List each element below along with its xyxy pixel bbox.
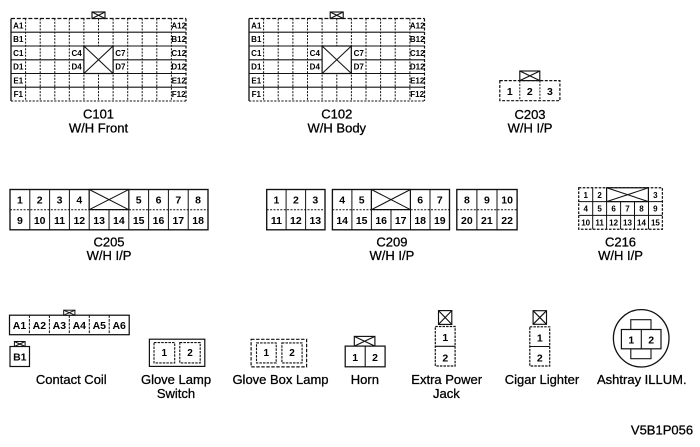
svg-text:A1: A1 xyxy=(13,320,27,332)
svg-text:C1: C1 xyxy=(251,49,262,58)
svg-text:22: 22 xyxy=(501,215,513,227)
svg-text:2: 2 xyxy=(527,86,533,98)
svg-text:Glove Lamp: Glove Lamp xyxy=(141,372,211,387)
svg-text:4: 4 xyxy=(339,195,345,207)
svg-text:14: 14 xyxy=(336,215,348,227)
svg-text:10: 10 xyxy=(501,195,513,207)
svg-text:Switch: Switch xyxy=(157,386,195,401)
svg-text:7: 7 xyxy=(437,195,443,207)
svg-text:A1: A1 xyxy=(13,21,24,30)
svg-text:D1: D1 xyxy=(13,63,24,72)
svg-text:2: 2 xyxy=(597,191,602,200)
svg-text:16: 16 xyxy=(153,215,165,227)
svg-text:D4: D4 xyxy=(71,63,82,72)
svg-text:A12: A12 xyxy=(171,21,186,30)
svg-text:5: 5 xyxy=(136,195,142,207)
svg-text:5: 5 xyxy=(597,205,602,214)
svg-text:15: 15 xyxy=(356,215,368,227)
svg-text:10: 10 xyxy=(581,219,590,228)
svg-text:W/H Front: W/H Front xyxy=(69,121,129,136)
svg-text:13: 13 xyxy=(309,215,321,227)
svg-text:E1: E1 xyxy=(13,76,23,85)
svg-text:6: 6 xyxy=(417,195,423,207)
svg-text:Contact Coil: Contact Coil xyxy=(36,372,107,387)
svg-text:2: 2 xyxy=(537,353,543,365)
svg-text:16: 16 xyxy=(375,215,387,227)
svg-text:13: 13 xyxy=(93,215,105,227)
svg-text:B1: B1 xyxy=(13,352,27,364)
svg-text:9: 9 xyxy=(484,195,490,207)
svg-text:C102: C102 xyxy=(321,107,352,122)
svg-text:Cigar Lighter: Cigar Lighter xyxy=(505,372,580,387)
svg-text:1: 1 xyxy=(537,332,543,344)
svg-text:C1: C1 xyxy=(13,49,24,58)
svg-text:12: 12 xyxy=(609,219,618,228)
svg-text:9: 9 xyxy=(17,215,23,227)
svg-text:12: 12 xyxy=(290,215,302,227)
svg-text:19: 19 xyxy=(434,215,446,227)
svg-text:C12: C12 xyxy=(410,49,425,58)
svg-text:11: 11 xyxy=(54,215,65,227)
svg-text:18: 18 xyxy=(192,215,204,227)
svg-text:2: 2 xyxy=(648,335,654,347)
svg-text:B1: B1 xyxy=(13,35,24,44)
svg-text:Glove Box Lamp: Glove Box Lamp xyxy=(232,372,328,387)
svg-text:2: 2 xyxy=(289,348,295,359)
svg-text:A3: A3 xyxy=(53,320,67,332)
svg-text:1: 1 xyxy=(162,348,168,359)
svg-text:11: 11 xyxy=(271,215,282,227)
svg-text:18: 18 xyxy=(414,215,426,227)
svg-text:Horn: Horn xyxy=(351,372,379,387)
svg-text:17: 17 xyxy=(395,215,407,227)
svg-text:1: 1 xyxy=(264,348,270,359)
svg-text:F1: F1 xyxy=(14,90,24,99)
svg-text:A1: A1 xyxy=(251,21,262,30)
svg-text:C7: C7 xyxy=(115,49,126,58)
svg-text:3: 3 xyxy=(312,195,318,207)
svg-text:1: 1 xyxy=(17,195,23,207)
svg-text:1: 1 xyxy=(583,191,588,200)
svg-text:W/H I/P: W/H I/P xyxy=(370,248,415,263)
svg-text:C4: C4 xyxy=(71,49,82,58)
svg-text:9: 9 xyxy=(653,205,658,214)
svg-text:C4: C4 xyxy=(310,49,321,58)
svg-text:W/H Body: W/H Body xyxy=(308,121,367,136)
svg-text:2: 2 xyxy=(37,195,43,207)
svg-text:A6: A6 xyxy=(112,320,126,332)
svg-text:2: 2 xyxy=(187,348,193,359)
svg-text:14: 14 xyxy=(637,219,646,228)
svg-text:8: 8 xyxy=(639,205,644,214)
svg-text:10: 10 xyxy=(34,215,46,227)
svg-text:7: 7 xyxy=(175,195,181,207)
svg-text:6: 6 xyxy=(156,195,162,207)
svg-text:Ashtray ILLUM.: Ashtray ILLUM. xyxy=(597,372,687,387)
svg-text:1: 1 xyxy=(442,332,448,344)
svg-text:E12: E12 xyxy=(410,76,425,85)
svg-text:D7: D7 xyxy=(115,63,126,72)
svg-text:D4: D4 xyxy=(310,63,321,72)
svg-text:Jack: Jack xyxy=(433,386,460,401)
svg-text:E1: E1 xyxy=(251,76,261,85)
svg-text:D1: D1 xyxy=(251,63,262,72)
svg-text:A2: A2 xyxy=(33,320,47,332)
svg-text:8: 8 xyxy=(195,195,201,207)
svg-text:1: 1 xyxy=(352,352,358,364)
svg-text:6: 6 xyxy=(611,205,616,214)
svg-text:11: 11 xyxy=(595,219,604,228)
svg-text:13: 13 xyxy=(623,219,632,228)
svg-text:F12: F12 xyxy=(410,90,424,99)
svg-text:B1: B1 xyxy=(251,35,262,44)
svg-text:A5: A5 xyxy=(93,320,107,332)
svg-text:W/H I/P: W/H I/P xyxy=(598,248,643,263)
svg-text:C7: C7 xyxy=(354,49,365,58)
svg-text:A4: A4 xyxy=(73,320,87,332)
svg-text:Extra Power: Extra Power xyxy=(411,372,482,387)
svg-text:21: 21 xyxy=(481,215,493,227)
svg-text:14: 14 xyxy=(113,215,125,227)
svg-text:1: 1 xyxy=(507,86,513,98)
svg-text:3: 3 xyxy=(57,195,63,207)
svg-text:1: 1 xyxy=(273,195,279,207)
svg-text:3: 3 xyxy=(653,191,658,200)
svg-text:15: 15 xyxy=(133,215,145,227)
svg-text:W/H I/P: W/H I/P xyxy=(87,248,132,263)
svg-text:D12: D12 xyxy=(171,63,186,72)
svg-text:F12: F12 xyxy=(172,90,186,99)
svg-text:W/H I/P: W/H I/P xyxy=(508,121,553,136)
svg-text:2: 2 xyxy=(293,195,299,207)
svg-text:V5B1P056: V5B1P056 xyxy=(631,423,693,438)
svg-text:F1: F1 xyxy=(252,90,262,99)
svg-text:C12: C12 xyxy=(171,49,186,58)
svg-text:5: 5 xyxy=(359,195,365,207)
svg-text:E12: E12 xyxy=(172,76,187,85)
svg-text:7: 7 xyxy=(625,205,630,214)
svg-text:B12: B12 xyxy=(171,35,186,44)
svg-text:4: 4 xyxy=(583,205,588,214)
svg-text:D7: D7 xyxy=(354,63,365,72)
svg-text:B12: B12 xyxy=(410,35,425,44)
svg-text:4: 4 xyxy=(76,195,82,207)
svg-text:D12: D12 xyxy=(410,63,425,72)
svg-text:2: 2 xyxy=(372,352,378,364)
svg-text:12: 12 xyxy=(73,215,85,227)
svg-text:C101: C101 xyxy=(83,107,114,122)
svg-text:20: 20 xyxy=(461,215,473,227)
svg-text:A12: A12 xyxy=(410,21,425,30)
svg-text:2: 2 xyxy=(442,352,448,364)
svg-text:1: 1 xyxy=(628,335,634,347)
svg-text:15: 15 xyxy=(651,219,660,228)
svg-text:17: 17 xyxy=(172,215,184,227)
svg-text:3: 3 xyxy=(547,86,553,98)
svg-text:8: 8 xyxy=(464,195,470,207)
